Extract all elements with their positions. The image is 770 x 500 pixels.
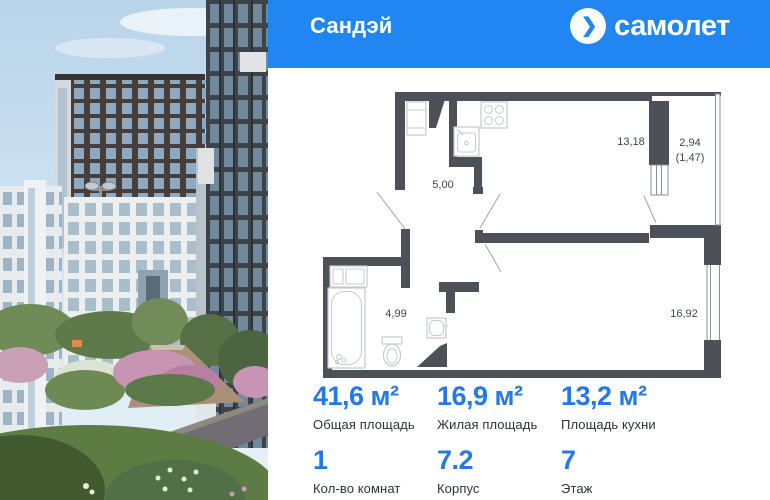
stove-icon — [481, 102, 507, 128]
stat-total-area: 41,6 м² Общая площадь — [313, 383, 437, 432]
listing-card[interactable]: Сандэй ❯ самолет — [0, 0, 770, 500]
stats: 41,6 м² Общая площадь 16,9 м² Жилая площ… — [313, 383, 753, 496]
stat-living-area-label: Жилая площадь — [437, 417, 561, 432]
stat-rooms-value: 1 — [313, 447, 437, 474]
room-label-kitchen: 13,18 — [617, 136, 645, 148]
toilet-icon — [382, 337, 402, 366]
brand-logo-text: самолет — [614, 10, 730, 43]
bathroom-sink-icon — [427, 318, 448, 338]
brand-logo: ❯ самолет — [570, 8, 730, 44]
stat-living-area: 16,9 м² Жилая площадь — [437, 383, 561, 432]
balcony-door-swing — [644, 196, 656, 223]
bathroom-door-leaf — [417, 343, 447, 367]
stat-kitchen-area-value: 13,2 м² — [561, 383, 731, 410]
stat-building-label: Корпус — [437, 481, 561, 496]
stat-building-value: 7.2 — [437, 447, 561, 474]
brand-logo-icon: ❯ — [570, 8, 606, 44]
stat-total-area-label: Общая площадь — [313, 417, 437, 432]
stat-building: 7.2 Корпус — [437, 447, 561, 496]
room-label-balcony: 2,94 — [679, 137, 700, 149]
stat-rooms-label: Кол-во комнат — [313, 481, 437, 496]
washing-machine-icon — [330, 266, 367, 287]
room-label-hallway: 5,00 — [432, 179, 453, 191]
kitchen-sink-icon — [454, 127, 479, 156]
stat-floor-label: Этаж — [561, 481, 731, 496]
stat-kitchen-area-label: Площадь кухни — [561, 417, 731, 432]
header: Сандэй ❯ самолет — [268, 0, 770, 68]
bathtub-icon — [328, 288, 365, 368]
stat-floor: 7 Этаж — [561, 447, 731, 496]
wardrobe-icon — [407, 102, 426, 135]
stat-floor-value: 7 — [561, 447, 731, 474]
room-label-balcony-coef: (1,47) — [676, 152, 705, 164]
building-render-illustration — [0, 0, 268, 500]
building-render-photo — [0, 0, 268, 500]
project-title: Сандэй — [310, 13, 393, 39]
entrance-door-swing — [377, 192, 405, 229]
stat-total-area-value: 41,6 м² — [313, 383, 437, 410]
room-label-bathroom: 4,99 — [385, 308, 406, 320]
room-label-living-room: 16,92 — [670, 308, 698, 320]
floor-plan-drawing: 5,00 13,18 2,94 (1,47) 4,99 16,92 — [320, 88, 722, 378]
room-door-swing — [480, 194, 500, 228]
floor-plan: 5,00 13,18 2,94 (1,47) 4,99 16,92 — [320, 88, 722, 378]
stat-rooms: 1 Кол-во комнат — [313, 447, 437, 496]
stat-kitchen-area: 13,2 м² Площадь кухни — [561, 383, 731, 432]
listing-panel: Сандэй ❯ самолет — [268, 0, 770, 500]
stat-living-area-value: 16,9 м² — [437, 383, 561, 410]
